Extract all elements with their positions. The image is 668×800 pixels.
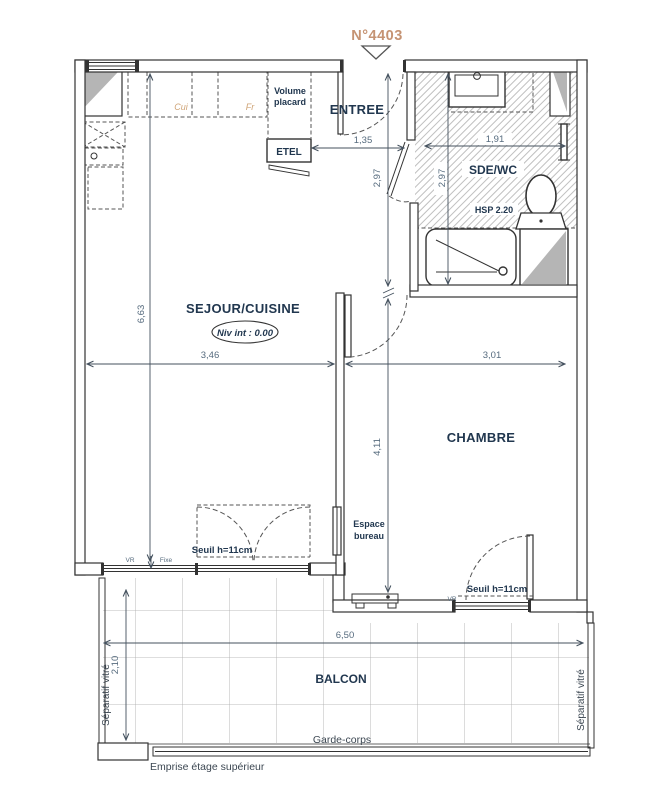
fridge-tag: Fr [246, 102, 255, 112]
hsp-label: HSP 2.20 [475, 205, 513, 215]
window-chambre-sill [455, 603, 528, 610]
wall-bottom-sejour-left [75, 563, 103, 575]
dim-2-97-entree: 2,97 [372, 169, 383, 188]
washbasin [449, 70, 505, 107]
chambre-door [345, 295, 407, 357]
kitchen-appliance [88, 167, 123, 209]
bureau: Espace bureau [352, 519, 398, 608]
jamb-cap [85, 60, 89, 72]
dim-2-10: 2,10 [110, 656, 121, 675]
dim-3-01: 3,01 [483, 350, 502, 361]
wall-bottom-chambre-right [530, 600, 587, 612]
garde-corps-label: Garde-corps [313, 734, 371, 746]
jamb-cap [308, 563, 311, 575]
dim-1-35: 1,35 [354, 135, 373, 146]
jamb-cap [340, 60, 343, 72]
toilet-flush [539, 219, 542, 222]
shower-drain [499, 267, 507, 275]
seuil-sejour-label: Seuil h=11cm [192, 545, 252, 556]
seuil-chambre-label: Seuil h=11cm [467, 584, 527, 595]
dim-1-91: 1,91 [486, 134, 505, 145]
etel-label: ETEL [276, 147, 302, 158]
dim-3-46: 3,46 [201, 350, 220, 361]
entry-pointer-icon [362, 46, 390, 59]
dim-4-11: 4,11 [372, 438, 383, 456]
emprise-label: Emprise étage supérieur [150, 761, 265, 773]
toilet-bowl [526, 175, 556, 217]
unit-number: N°4403 [351, 28, 403, 44]
wall-bottom-chambre-left [333, 600, 455, 612]
jamb-cap [528, 600, 531, 612]
wall-left [75, 60, 85, 575]
vr-sejour-label: VR [125, 557, 134, 564]
volume-placard-label-2: placard [274, 97, 306, 107]
espace-bureau-label-2: bureau [354, 531, 384, 541]
sde-door [387, 142, 411, 202]
dim-end-dot [386, 595, 390, 599]
cooktop-tag: Cui [174, 102, 189, 112]
wall-right [577, 60, 587, 612]
upper-floor-footprint-box [98, 743, 148, 760]
wall-entry-sde-panel [407, 72, 415, 140]
room-label-sejour: SEJOUR/CUISINE [186, 301, 300, 316]
room-label-chambre: CHAMBRE [447, 430, 516, 445]
kitchen: Cui Fr [78, 70, 267, 209]
wall-bathroom-bottom [410, 285, 577, 297]
dim-break-2 [383, 293, 394, 298]
room-label-entree: ENTREE [330, 102, 385, 117]
window-sejour-fixed [104, 566, 196, 572]
niveau-label: Niv int : 0.00 [217, 328, 274, 339]
jamb-cap [101, 563, 104, 575]
espace-bureau-label-1: Espace [353, 519, 385, 529]
jamb-cap [403, 60, 406, 72]
dim-break-1 [383, 288, 394, 293]
window-sejour-door-sill [198, 566, 308, 572]
floor-plan: N°4403 Séparatif vitré Séparatif vitré B… [0, 0, 668, 800]
sink-drain [91, 153, 97, 159]
floor-plan-drawing: N°4403 Séparatif vitré Séparatif vitré B… [0, 0, 668, 800]
dim-2-97-sde: 2,97 [437, 169, 448, 188]
fixe-label: Fixe [160, 557, 173, 564]
wall-top-right [405, 60, 587, 72]
entry-closet: Volume placard ETEL [267, 72, 311, 176]
dim-6-63: 6,63 [136, 305, 147, 324]
jamb-cap [135, 60, 139, 72]
room-label-balcon: BALCON [315, 672, 366, 686]
wall-stub-right [587, 612, 593, 623]
wall-sde-left-lower [410, 203, 418, 291]
dim-6-50: 6,50 [336, 630, 355, 641]
volume-placard-label-1: Volume [274, 86, 306, 96]
unit-marker: N°4403 [351, 28, 403, 59]
towel-rail [561, 124, 567, 160]
vr-chambre-label: VR [447, 596, 456, 603]
room-label-sde-wc: SDE/WC [469, 163, 517, 177]
etel-flap [269, 165, 309, 176]
separator-label-right: Séparatif vitré [576, 669, 587, 731]
wall-step [333, 575, 344, 602]
